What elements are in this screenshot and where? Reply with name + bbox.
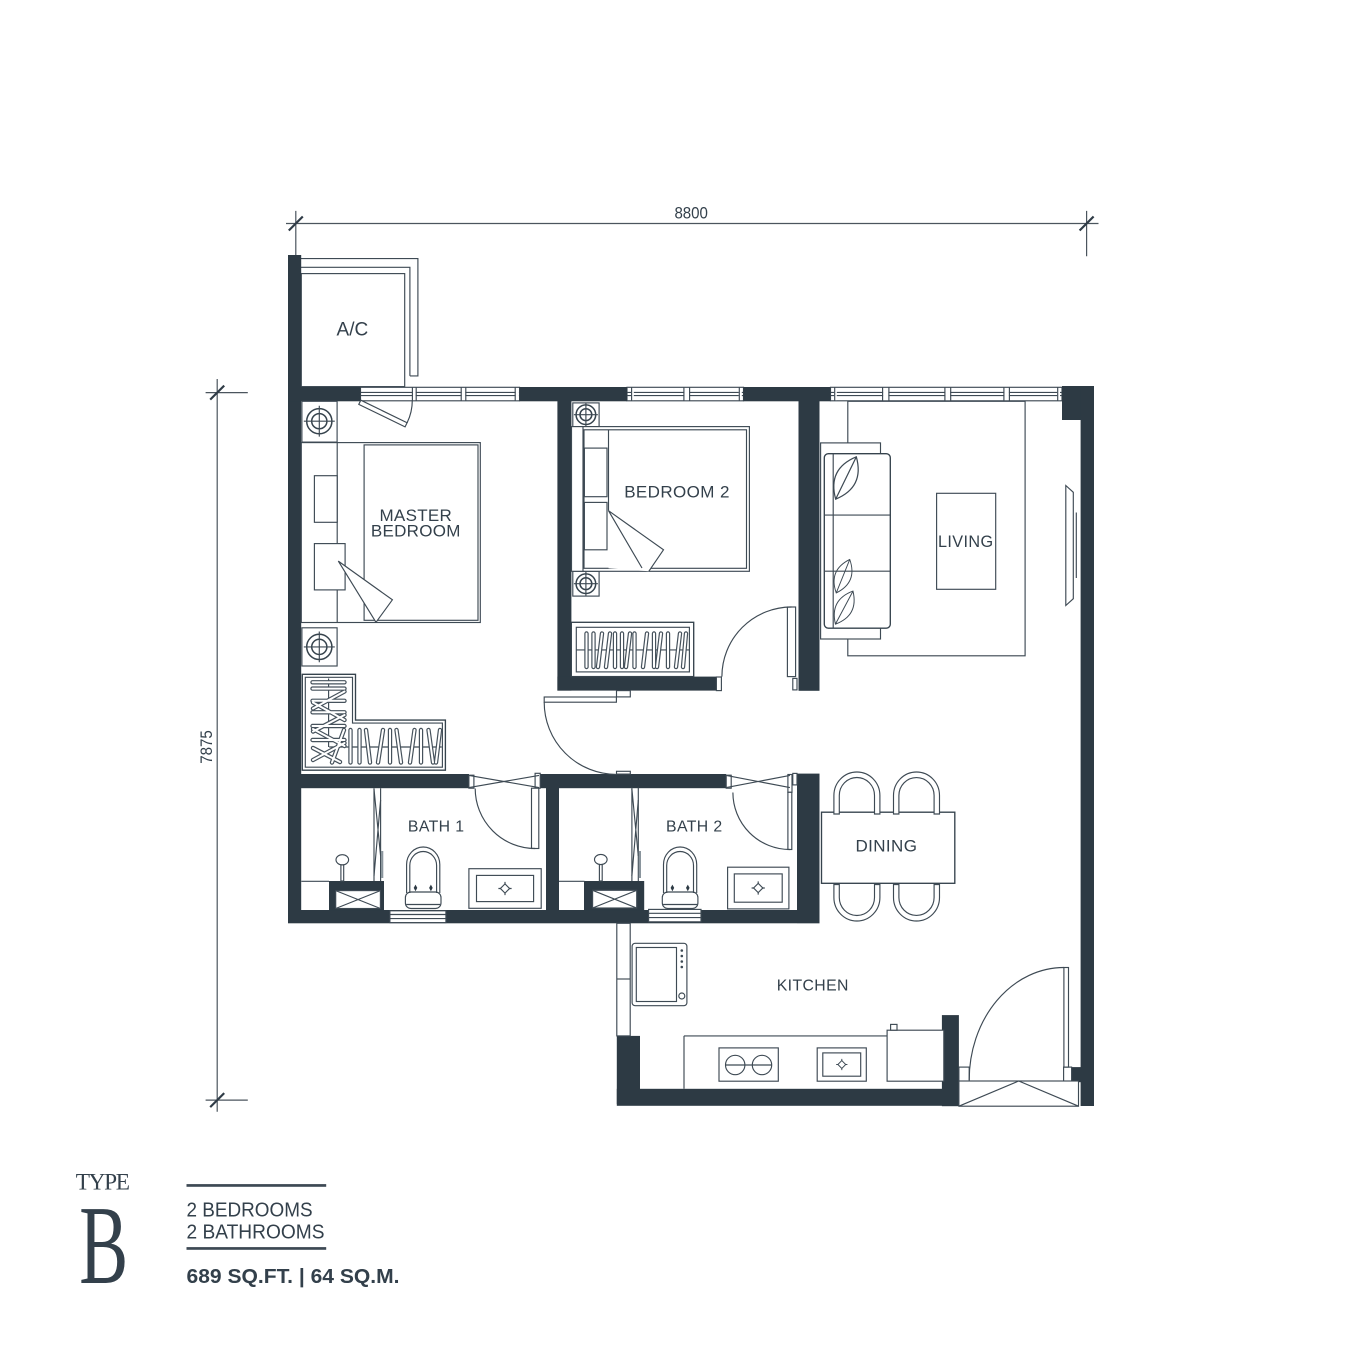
svg-text:2 BEDROOMS: 2 BEDROOMS: [187, 1198, 313, 1221]
svg-text:8800: 8800: [674, 204, 708, 223]
svg-text:BATH 2: BATH 2: [666, 819, 723, 836]
svg-text:7875: 7875: [197, 730, 216, 764]
svg-text:BEDROOM 2: BEDROOM 2: [624, 483, 730, 502]
svg-text:BATH 1: BATH 1: [408, 819, 465, 836]
svg-text:LIVING: LIVING: [938, 533, 993, 551]
svg-text:BEDROOM: BEDROOM: [371, 521, 461, 540]
svg-text:2 BATHROOMS: 2 BATHROOMS: [187, 1221, 325, 1244]
svg-text:A/C: A/C: [337, 320, 369, 341]
svg-text:B: B: [79, 1185, 128, 1308]
svg-text:689 SQ.FT. | 64 SQ.M.: 689 SQ.FT. | 64 SQ.M.: [187, 1265, 400, 1288]
svg-text:DINING: DINING: [855, 836, 917, 855]
svg-text:KITCHEN: KITCHEN: [777, 978, 849, 995]
